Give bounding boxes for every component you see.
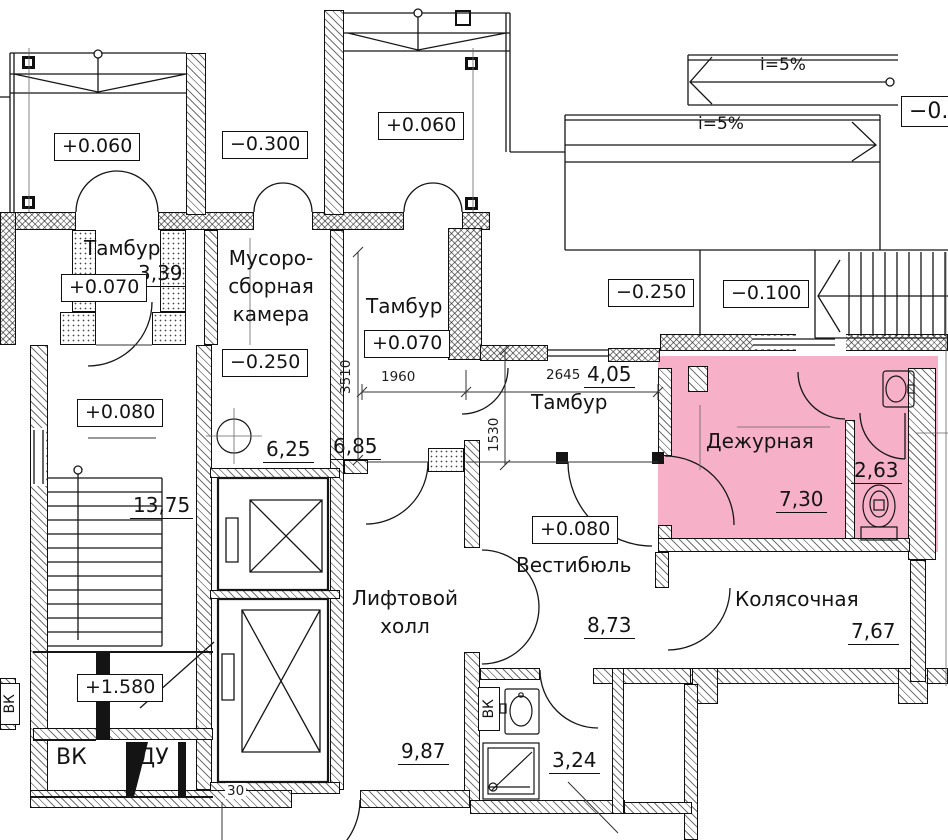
area-label: 6,25 [263, 437, 314, 463]
elevation-label: +0.060 [378, 112, 464, 140]
window [548, 347, 608, 359]
column-icon [22, 56, 35, 69]
wall [658, 368, 672, 456]
area-label: 4,05 [584, 362, 635, 388]
wall [428, 448, 464, 472]
room-label-line: Мусоро- [208, 244, 334, 272]
wall [655, 552, 669, 588]
wall [608, 348, 660, 362]
elevation-label: −0.300 [222, 131, 308, 159]
room-label-line: камера [208, 300, 334, 328]
area-label: 8,73 [584, 613, 635, 639]
floor-drain-icon [217, 419, 251, 453]
area-label: 9,87 [398, 739, 449, 765]
elevation-label: +0.080 [77, 399, 163, 427]
dimension-text: 2645 [546, 367, 580, 383]
area-label: 3,24 [549, 748, 600, 774]
shaft-label: ВК [481, 699, 497, 719]
room-label-dezhurnaya: Дежурная [706, 430, 814, 452]
elevation-label: −0.250 [608, 279, 694, 307]
room-label-kolyasochnaya: Колясочная [735, 588, 859, 610]
canopy-left [0, 50, 186, 212]
column-icon [465, 57, 478, 70]
dimension-text: 30 [225, 783, 246, 799]
door-jamb [652, 452, 664, 464]
room-label-musoro: Мусоро- сборная камера [208, 244, 334, 328]
column-icon [455, 10, 471, 26]
elevation-label: +0.060 [54, 133, 140, 161]
elevation-label: +0.070 [364, 330, 450, 358]
room-label-du: ДУ [138, 746, 169, 770]
vk-shaft: ВК [0, 683, 20, 725]
wall [0, 212, 16, 345]
wall [210, 590, 340, 599]
dimension-text: 3510 [338, 330, 354, 394]
wall [480, 345, 548, 361]
slope-label: i=5% [760, 55, 806, 75]
room-label-vestibul: Вестибюль [516, 554, 631, 576]
wall [210, 468, 340, 478]
wall [908, 368, 936, 560]
room-label-line: сборная [208, 272, 334, 300]
elevation-label: +0.080 [532, 516, 618, 544]
shaft-label: ВК [2, 694, 18, 714]
sink-icon [500, 689, 539, 734]
room-label-tambur1: Тамбур [84, 237, 160, 259]
area-label: 7,67 [848, 619, 899, 645]
area-label: 2,63 [851, 458, 902, 484]
door-opening [796, 334, 846, 352]
elevation-label: +0.070 [61, 274, 147, 302]
wall [464, 440, 480, 548]
wall [178, 742, 186, 797]
vk-shaft: ВК [478, 687, 500, 731]
wall [658, 538, 910, 552]
dimension-text: 1960 [381, 369, 415, 385]
wall [480, 668, 540, 680]
wall [158, 212, 254, 230]
shower-tray-icon [483, 743, 539, 799]
elevation-label-clipped: −0. [901, 96, 948, 127]
column-icon [465, 197, 478, 210]
wall [684, 684, 698, 840]
area-label: 6,85 [330, 434, 381, 460]
wall [33, 728, 213, 740]
floor-plan: +0.060 −0.300 +0.060 +0.070 −0.250 +0.07… [0, 0, 948, 840]
area-label: 7,30 [776, 487, 827, 513]
porch-column [186, 53, 206, 215]
wall [688, 366, 708, 392]
room-label-vk: ВК [56, 746, 87, 770]
room-label-tambur3: Тамбур [531, 391, 607, 413]
wall [360, 790, 470, 808]
wall [344, 460, 368, 474]
elevation-label: +1.580 [77, 674, 163, 702]
window [31, 428, 46, 486]
room-label-line: холл [332, 612, 478, 640]
dimension-text: 1530 [486, 396, 502, 452]
wall [30, 790, 292, 808]
elevator-cars [222, 500, 322, 752]
wall [470, 800, 625, 814]
wall [448, 228, 482, 360]
porch-column [324, 10, 344, 215]
elevator-shafts [218, 478, 328, 782]
elevation-label: −0.100 [723, 280, 809, 308]
room-label-lift-hall: Лифтовой холл [332, 584, 478, 640]
wall [624, 802, 692, 814]
column-icon [22, 196, 35, 209]
wall [910, 560, 926, 682]
room-label-tambur2: Тамбур [366, 295, 442, 317]
wall [612, 668, 624, 814]
door-jamb [556, 452, 568, 464]
outdoor-stair [815, 252, 948, 338]
room-label-line: Лифтовой [332, 584, 478, 612]
slope-label: i=5% [698, 114, 744, 134]
wall [152, 312, 186, 345]
wall [196, 345, 212, 790]
area-label: 13,75 [130, 493, 193, 519]
elevation-label: −0.250 [222, 349, 308, 377]
wall [593, 668, 705, 684]
wall [60, 312, 96, 345]
